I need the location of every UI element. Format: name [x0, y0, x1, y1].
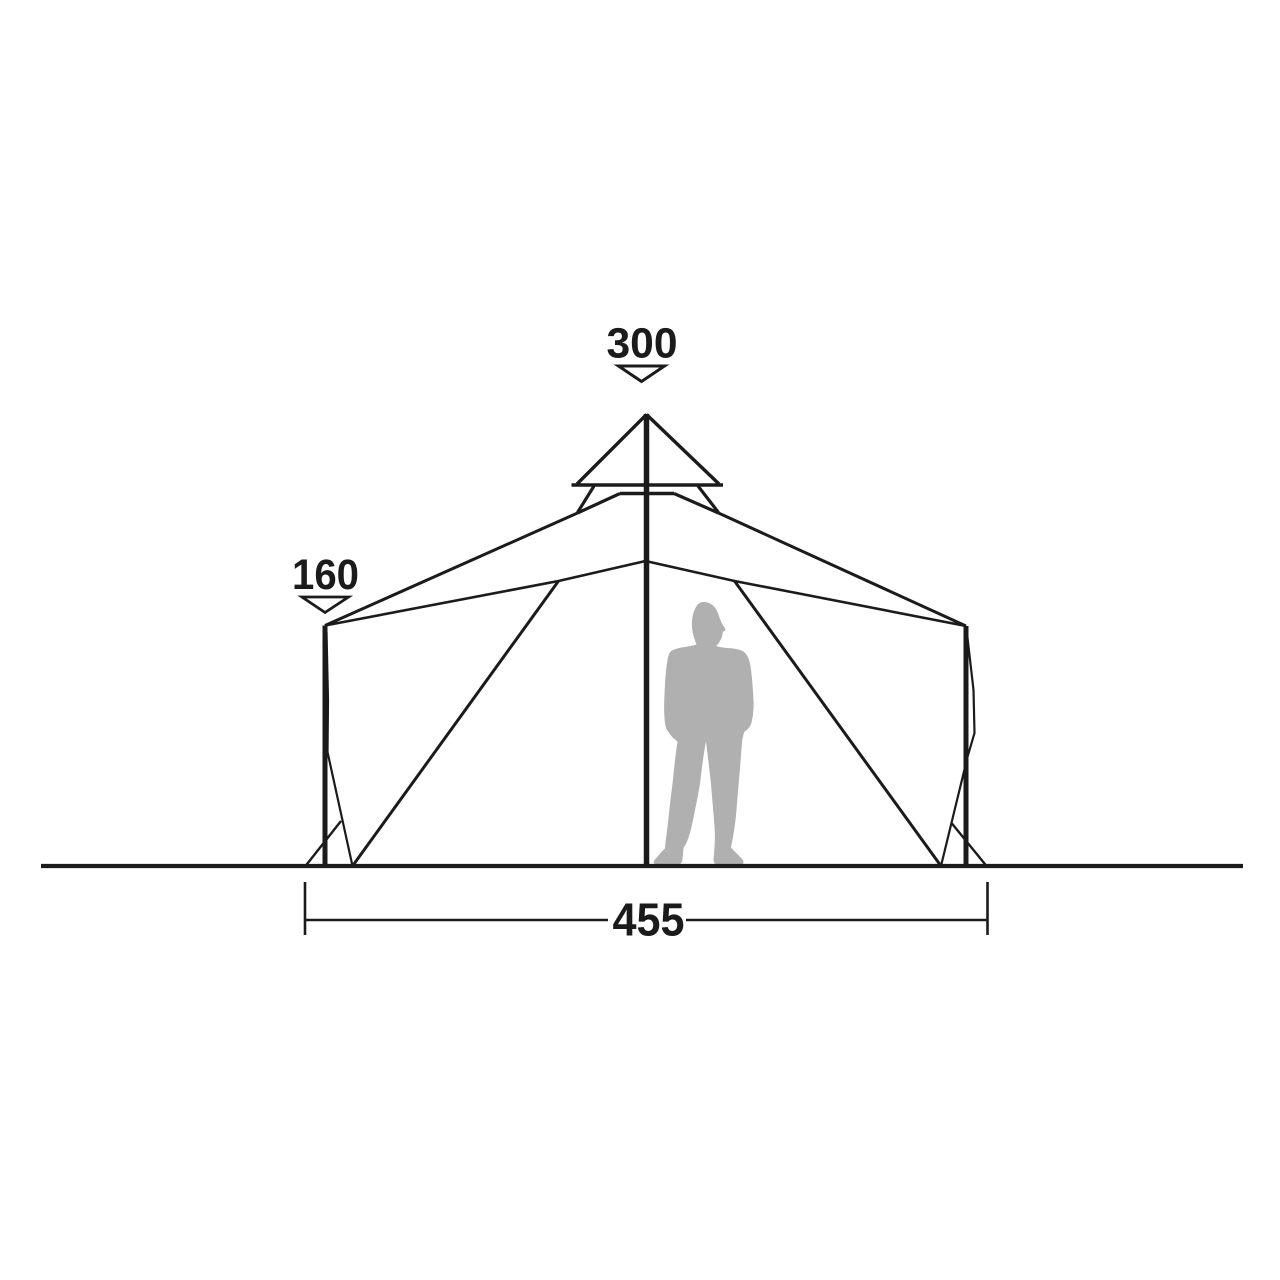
svg-text:160: 160	[292, 551, 359, 599]
svg-text:455: 455	[613, 894, 685, 946]
svg-text:300: 300	[607, 320, 678, 368]
